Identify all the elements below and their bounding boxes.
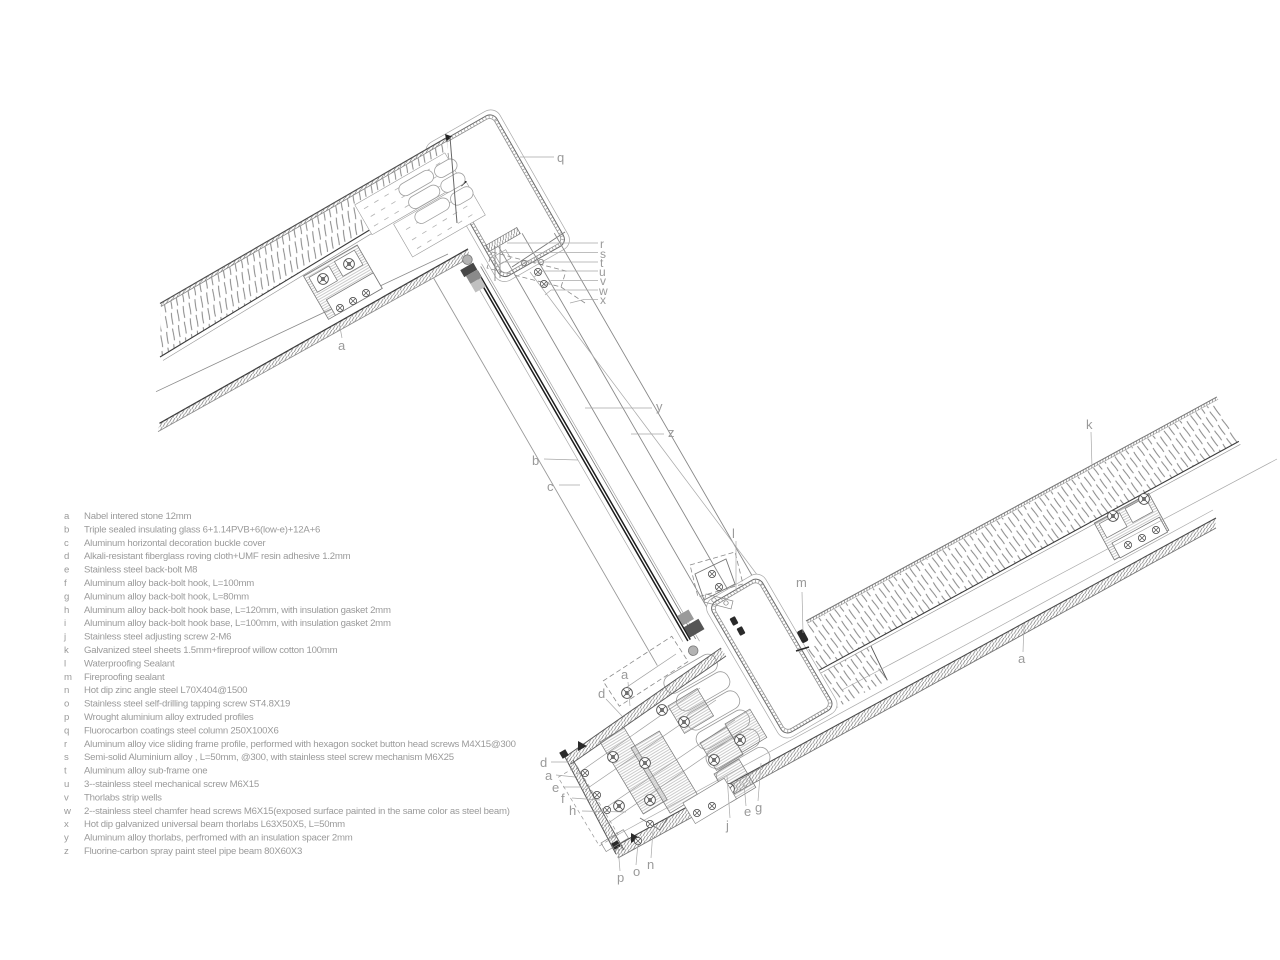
- svg-text:Aluminum alloy back-bolt hook,: Aluminum alloy back-bolt hook, L=80mm: [84, 591, 249, 602]
- svg-text:e: e: [744, 804, 751, 819]
- svg-text:v: v: [64, 792, 69, 803]
- svg-text:p: p: [64, 712, 69, 723]
- svg-text:a: a: [338, 338, 346, 353]
- svg-text:n: n: [647, 857, 654, 872]
- svg-text:w: w: [63, 806, 71, 817]
- svg-text:Semi-solid Aluminium alloy , L: Semi-solid Aluminium alloy , L=50mm, @30…: [84, 752, 454, 763]
- svg-text:a: a: [64, 511, 70, 522]
- svg-text:g: g: [64, 591, 69, 602]
- svg-text:Aluminum alloy sub-frame one: Aluminum alloy sub-frame one: [84, 766, 207, 777]
- svg-text:k: k: [1086, 417, 1093, 432]
- svg-text:Hot dip galvanized universal b: Hot dip galvanized universal beam thorla…: [84, 819, 345, 830]
- svg-text:q: q: [557, 150, 564, 165]
- svg-text:j: j: [63, 632, 66, 643]
- svg-text:Stainless steel self-drilling: Stainless steel self-drilling tapping sc…: [84, 699, 290, 710]
- svg-text:Aluminum alloy back-bolt hook: Aluminum alloy back-bolt hook base, L=10…: [84, 618, 391, 629]
- svg-text:Aluminum horizontal decoration: Aluminum horizontal decoration buckle co…: [84, 538, 266, 549]
- svg-text:Aluminum alloy thorlabs, perfr: Aluminum alloy thorlabs, perfromed with …: [84, 833, 353, 844]
- svg-text:Galvanized steel sheets 1.5mm+: Galvanized steel sheets 1.5mm+fireproof …: [84, 645, 338, 656]
- svg-text:j: j: [725, 818, 729, 833]
- svg-text:Fluorocarbon coatings steel co: Fluorocarbon coatings steel column 250X1…: [84, 725, 279, 736]
- svg-text:Hot dip zinc angle steel L70X4: Hot dip zinc angle steel L70X404@1500: [84, 685, 247, 696]
- svg-text:Aluminum alloy back-bolt hook,: Aluminum alloy back-bolt hook, L=100mm: [84, 578, 254, 589]
- svg-text:k: k: [64, 645, 69, 656]
- svg-text:d: d: [64, 551, 69, 562]
- svg-text:h: h: [569, 803, 576, 818]
- svg-text:Stainless steel adjusting scre: Stainless steel adjusting screw 2-M6: [84, 632, 231, 643]
- svg-text:g: g: [755, 800, 762, 815]
- svg-text:y: y: [656, 399, 663, 414]
- svg-text:Alkali-resistant fiberglass ro: Alkali-resistant fiberglass roving cloth…: [84, 551, 351, 562]
- svg-text:u: u: [64, 779, 69, 790]
- svg-text:m: m: [796, 575, 807, 590]
- svg-text:n: n: [64, 685, 69, 696]
- svg-text:Stainless steel back-bolt M8: Stainless steel back-bolt M8: [84, 565, 197, 576]
- svg-text:Fluorine-carbon spray paint st: Fluorine-carbon spray paint steel pipe b…: [84, 846, 302, 857]
- svg-text:f: f: [561, 791, 565, 806]
- svg-text:x: x: [600, 293, 606, 307]
- svg-text:e: e: [64, 565, 69, 576]
- svg-text:p: p: [617, 870, 624, 885]
- svg-text:Nabel intered stone 12mm: Nabel intered stone 12mm: [84, 511, 191, 522]
- svg-text:c: c: [64, 538, 69, 549]
- svg-text:Thorlabs strip wells: Thorlabs strip wells: [84, 792, 162, 803]
- svg-text:m: m: [64, 672, 72, 683]
- svg-text:q: q: [64, 725, 69, 736]
- svg-text:o: o: [633, 864, 640, 879]
- svg-text:z: z: [64, 846, 69, 857]
- svg-text:Triple sealed insulating glass: Triple sealed insulating glass 6+1.14PVB…: [84, 524, 320, 535]
- svg-text:Waterproofing Sealant: Waterproofing Sealant: [84, 658, 175, 669]
- svg-text:e: e: [552, 780, 559, 795]
- svg-text:b: b: [64, 524, 69, 535]
- svg-text:x: x: [64, 819, 69, 830]
- svg-text:a: a: [621, 667, 629, 682]
- svg-text:h: h: [64, 605, 69, 616]
- svg-text:a: a: [1018, 651, 1026, 666]
- svg-text:Aluminum alloy back-bolt hook: Aluminum alloy back-bolt hook base, L=12…: [84, 605, 391, 616]
- svg-text:z: z: [668, 425, 675, 440]
- svg-text:y: y: [64, 833, 69, 844]
- svg-text:i: i: [64, 618, 66, 629]
- svg-text:b: b: [532, 453, 539, 468]
- svg-text:Fireproofing sealant: Fireproofing sealant: [84, 672, 165, 683]
- svg-text:l: l: [732, 526, 735, 541]
- svg-text:o: o: [64, 699, 69, 710]
- svg-text:Aluminum alloy vice sliding fr: Aluminum alloy vice sliding frame profil…: [84, 739, 516, 750]
- svg-text:2--stainless steel chamfer hea: 2--stainless steel chamfer head screws M…: [84, 806, 510, 817]
- svg-text:s: s: [64, 752, 69, 763]
- svg-text:Wrought aluminium alloy extrud: Wrought aluminium alloy extruded profile…: [84, 712, 254, 723]
- svg-text:d: d: [598, 686, 605, 701]
- svg-text:c: c: [547, 479, 554, 494]
- svg-text:l: l: [64, 658, 66, 669]
- svg-text:3--stainless steel mechanical: 3--stainless steel mechanical screw M6X1…: [84, 779, 259, 790]
